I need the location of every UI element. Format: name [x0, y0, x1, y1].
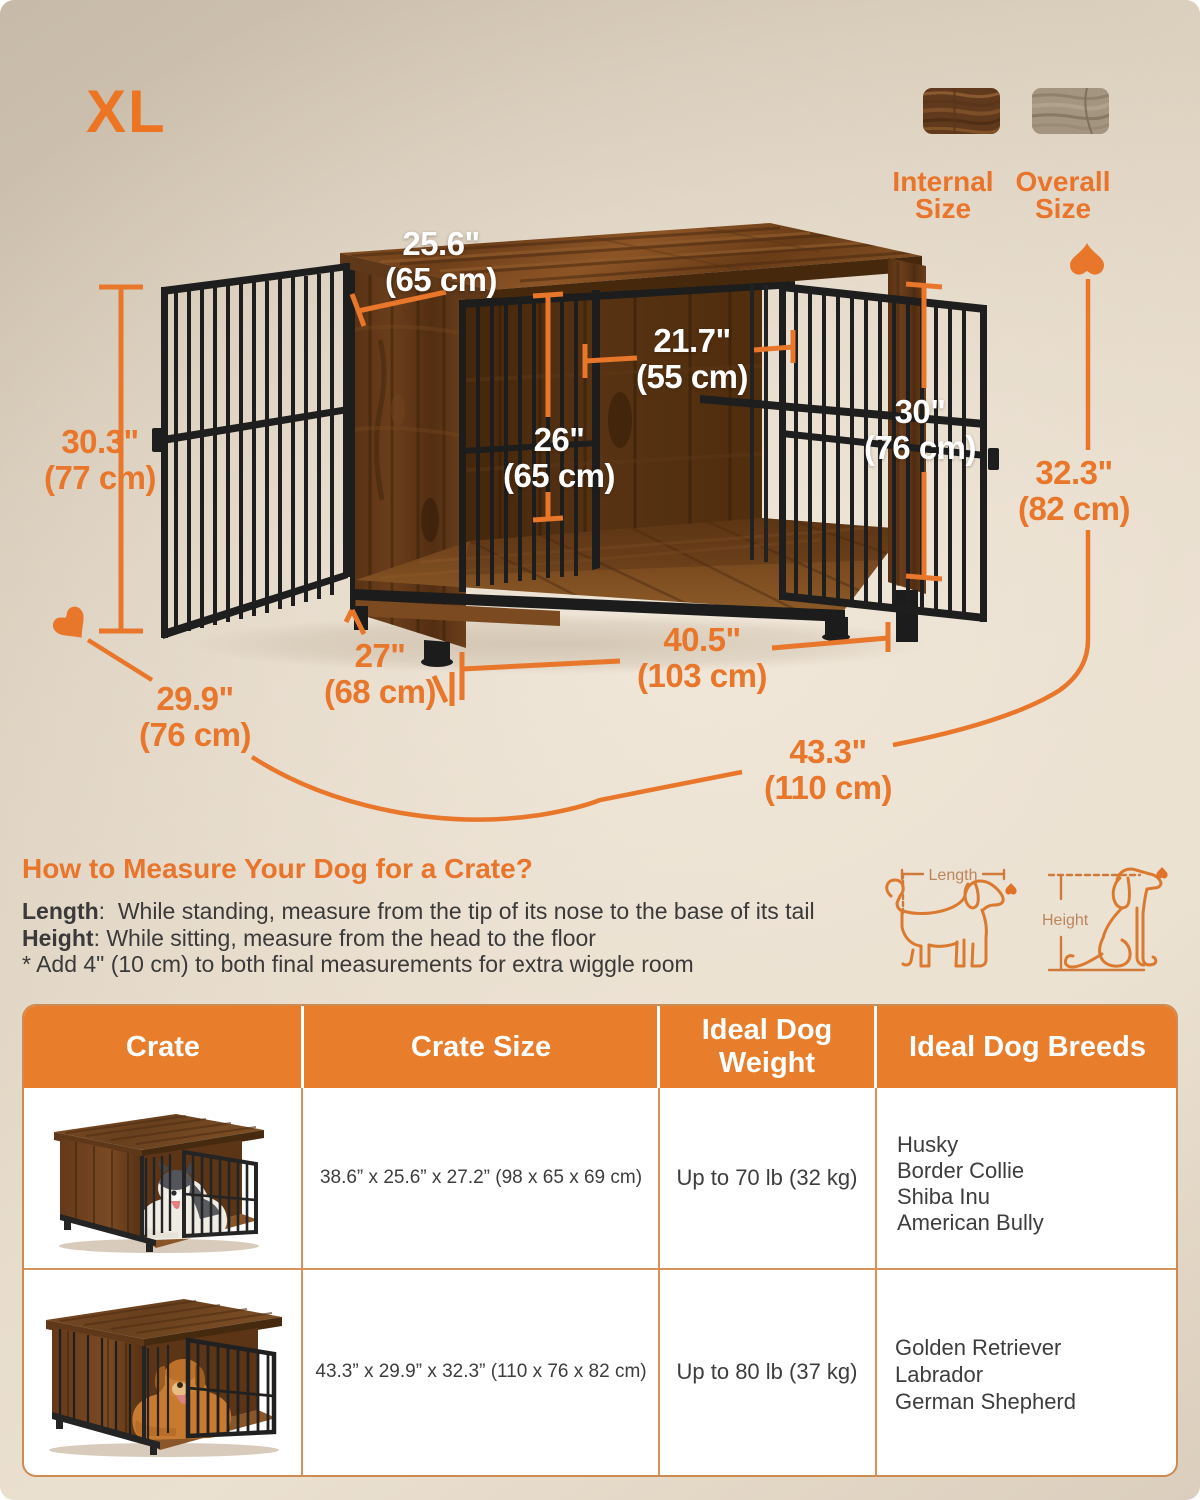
svg-text:Height: Height: [1042, 912, 1089, 929]
svg-text:Length: Length: [929, 867, 978, 884]
